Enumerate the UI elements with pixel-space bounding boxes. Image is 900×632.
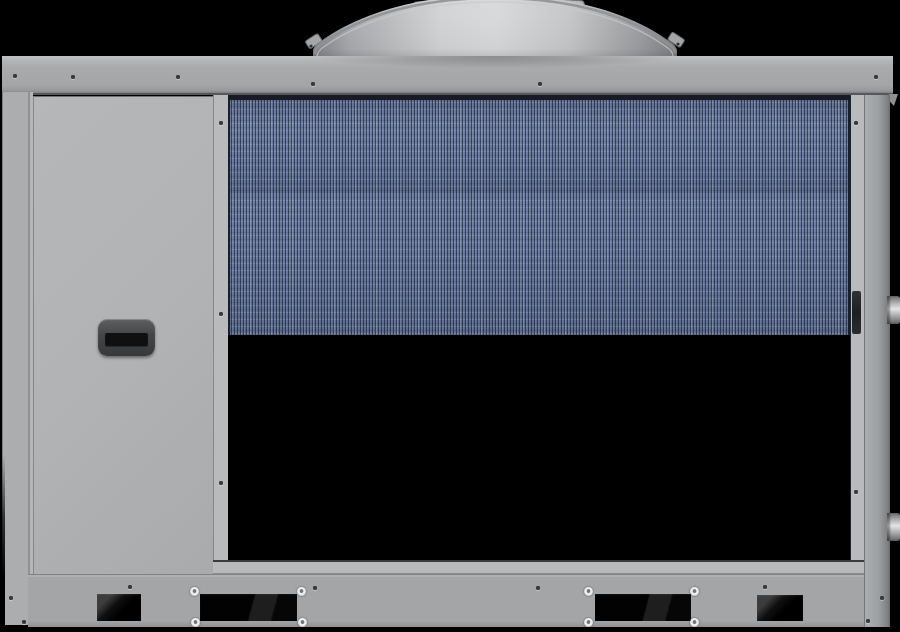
panel-screw [854, 121, 858, 125]
panel-latch [852, 291, 861, 334]
panel-screw [219, 121, 223, 125]
access-door-panel [33, 96, 214, 581]
panel-screw [313, 586, 317, 590]
forklift-vent-small [97, 594, 141, 621]
coil-bottom-edge [228, 95, 850, 100]
corner-bolt [190, 587, 199, 596]
panel-screw [176, 75, 180, 79]
forklift-vent-small [757, 595, 803, 621]
left-edge-shadow [0, 455, 5, 632]
right-side-panel [864, 95, 890, 627]
fan-shroud [298, 0, 692, 62]
corner-bolt [298, 618, 307, 627]
panel-screw [311, 82, 315, 86]
corner-bolt [584, 587, 593, 596]
panel-screw [536, 586, 540, 590]
panel-screw [128, 585, 132, 589]
base-panel [28, 574, 880, 627]
forklift-vent-big [200, 594, 297, 621]
forklift-vent-big [595, 594, 691, 621]
panel-screw [854, 490, 858, 494]
panel-screw [763, 585, 767, 589]
panel-screw [9, 596, 13, 600]
panel-screw [874, 75, 878, 79]
corner-bolt [191, 618, 200, 627]
coil-bottom-rail [213, 560, 864, 574]
coil-frame-right [850, 95, 864, 574]
corner-bolt [584, 618, 593, 627]
door-handle [98, 319, 155, 356]
corner-bolt [690, 618, 699, 627]
coil-section-3 [228, 95, 850, 194]
panel-screw [538, 82, 542, 86]
panel-screw [71, 75, 75, 79]
corner-bolt [297, 587, 306, 596]
fan-shroud-shadow [310, 56, 678, 68]
coil-frame-left [213, 95, 228, 574]
chiller-unit-render [0, 0, 900, 632]
panel-screw [866, 619, 870, 623]
panel-screw [13, 74, 17, 78]
panel-screw [219, 481, 223, 485]
panel-screw [219, 312, 223, 316]
left-side-column [2, 92, 33, 625]
top-rail-right-endcap [889, 94, 898, 106]
panel-screw [880, 596, 884, 600]
side-pipe-stub [887, 296, 900, 324]
side-pipe-stub [887, 513, 900, 541]
corner-bolt [690, 587, 699, 596]
door-handle-slot [105, 333, 148, 347]
panel-screw [22, 620, 26, 624]
condenser-coil [228, 95, 850, 560]
